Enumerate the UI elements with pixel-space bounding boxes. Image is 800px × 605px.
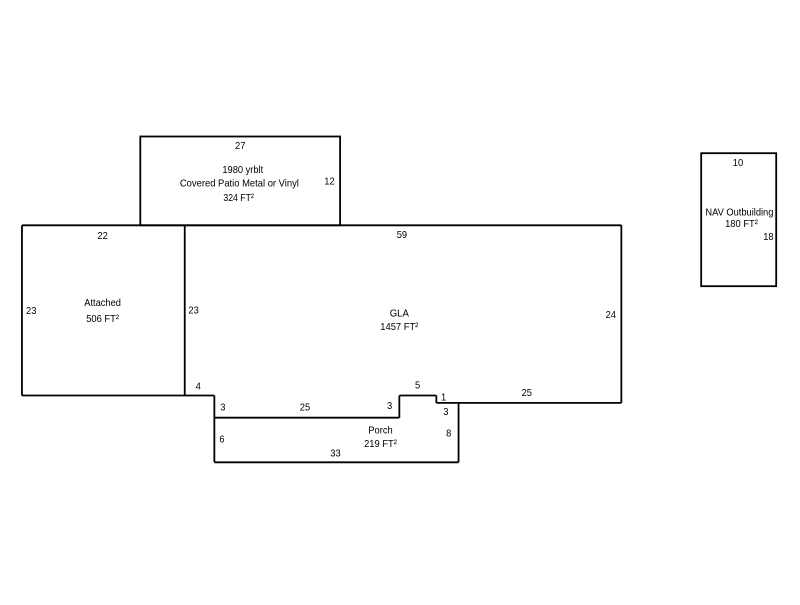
svg-text:25: 25 (300, 401, 311, 413)
svg-text:Attached: Attached (84, 297, 121, 309)
svg-text:27: 27 (235, 140, 246, 152)
svg-text:Covered Patio Metal or Vinyl: Covered Patio Metal or Vinyl (180, 178, 299, 190)
svg-text:3: 3 (387, 400, 392, 412)
svg-text:10: 10 (733, 157, 744, 169)
svg-text:22: 22 (97, 230, 108, 242)
svg-text:1: 1 (441, 391, 446, 403)
svg-text:23: 23 (188, 305, 199, 317)
svg-text:219 FT²: 219 FT² (364, 438, 397, 450)
svg-text:18: 18 (763, 231, 774, 243)
svg-text:4: 4 (196, 380, 201, 392)
svg-text:3: 3 (220, 401, 225, 413)
svg-text:180 FT²: 180 FT² (725, 218, 758, 230)
svg-text:1980 yrblt: 1980 yrblt (222, 164, 263, 176)
svg-text:3: 3 (443, 406, 448, 418)
svg-text:24: 24 (606, 309, 617, 321)
svg-text:25: 25 (522, 387, 533, 399)
svg-text:324 FT²: 324 FT² (223, 192, 254, 204)
svg-text:33: 33 (330, 448, 341, 460)
svg-text:NAV Outbuilding: NAV Outbuilding (705, 207, 773, 219)
svg-text:Porch: Porch (368, 424, 392, 436)
svg-text:12: 12 (324, 175, 335, 187)
svg-text:59: 59 (397, 229, 408, 241)
svg-text:GLA: GLA (390, 307, 409, 319)
svg-text:5: 5 (415, 379, 420, 391)
svg-text:1457 FT²: 1457 FT² (380, 321, 418, 333)
svg-text:6: 6 (219, 434, 224, 446)
svg-text:23: 23 (26, 305, 37, 317)
svg-text:8: 8 (446, 427, 451, 439)
svg-text:506 FT²: 506 FT² (86, 313, 119, 325)
